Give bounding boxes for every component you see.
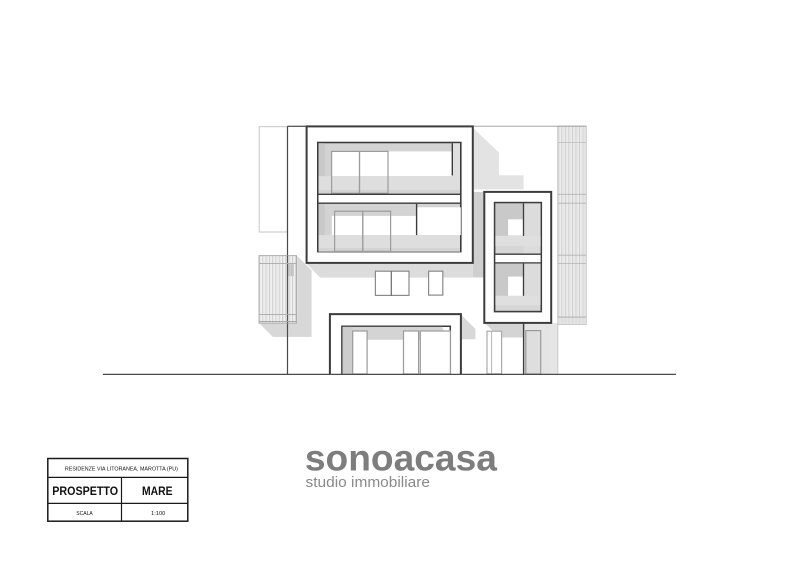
svg-text:MARE: MARE (142, 484, 173, 498)
svg-text:1:100: 1:100 (151, 511, 165, 517)
svg-text:studio immobiliare: studio immobiliare (306, 474, 431, 491)
svg-text:sonoacasa: sonoacasa (305, 438, 497, 479)
svg-text:RESIDENZE VIA LITORANEA, MAROT: RESIDENZE VIA LITORANEA, MAROTTA (PU) (65, 466, 178, 472)
svg-text:PROSPETTO: PROSPETTO (52, 484, 118, 498)
svg-text:SCALA: SCALA (76, 511, 93, 517)
